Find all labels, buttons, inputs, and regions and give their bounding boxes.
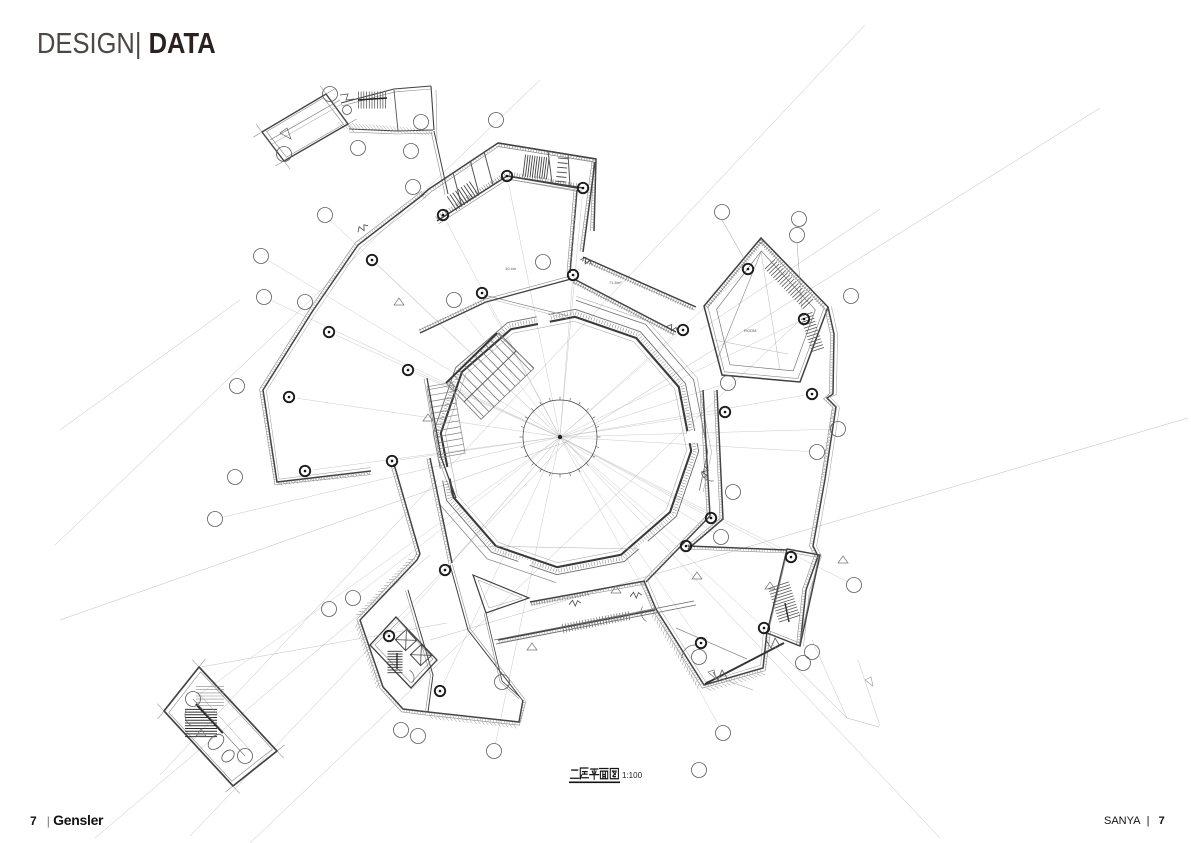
svg-text:71.8m²: 71.8m² — [609, 280, 622, 285]
svg-text:ROOM: ROOM — [744, 328, 756, 333]
svg-text:10.4m: 10.4m — [505, 266, 517, 271]
